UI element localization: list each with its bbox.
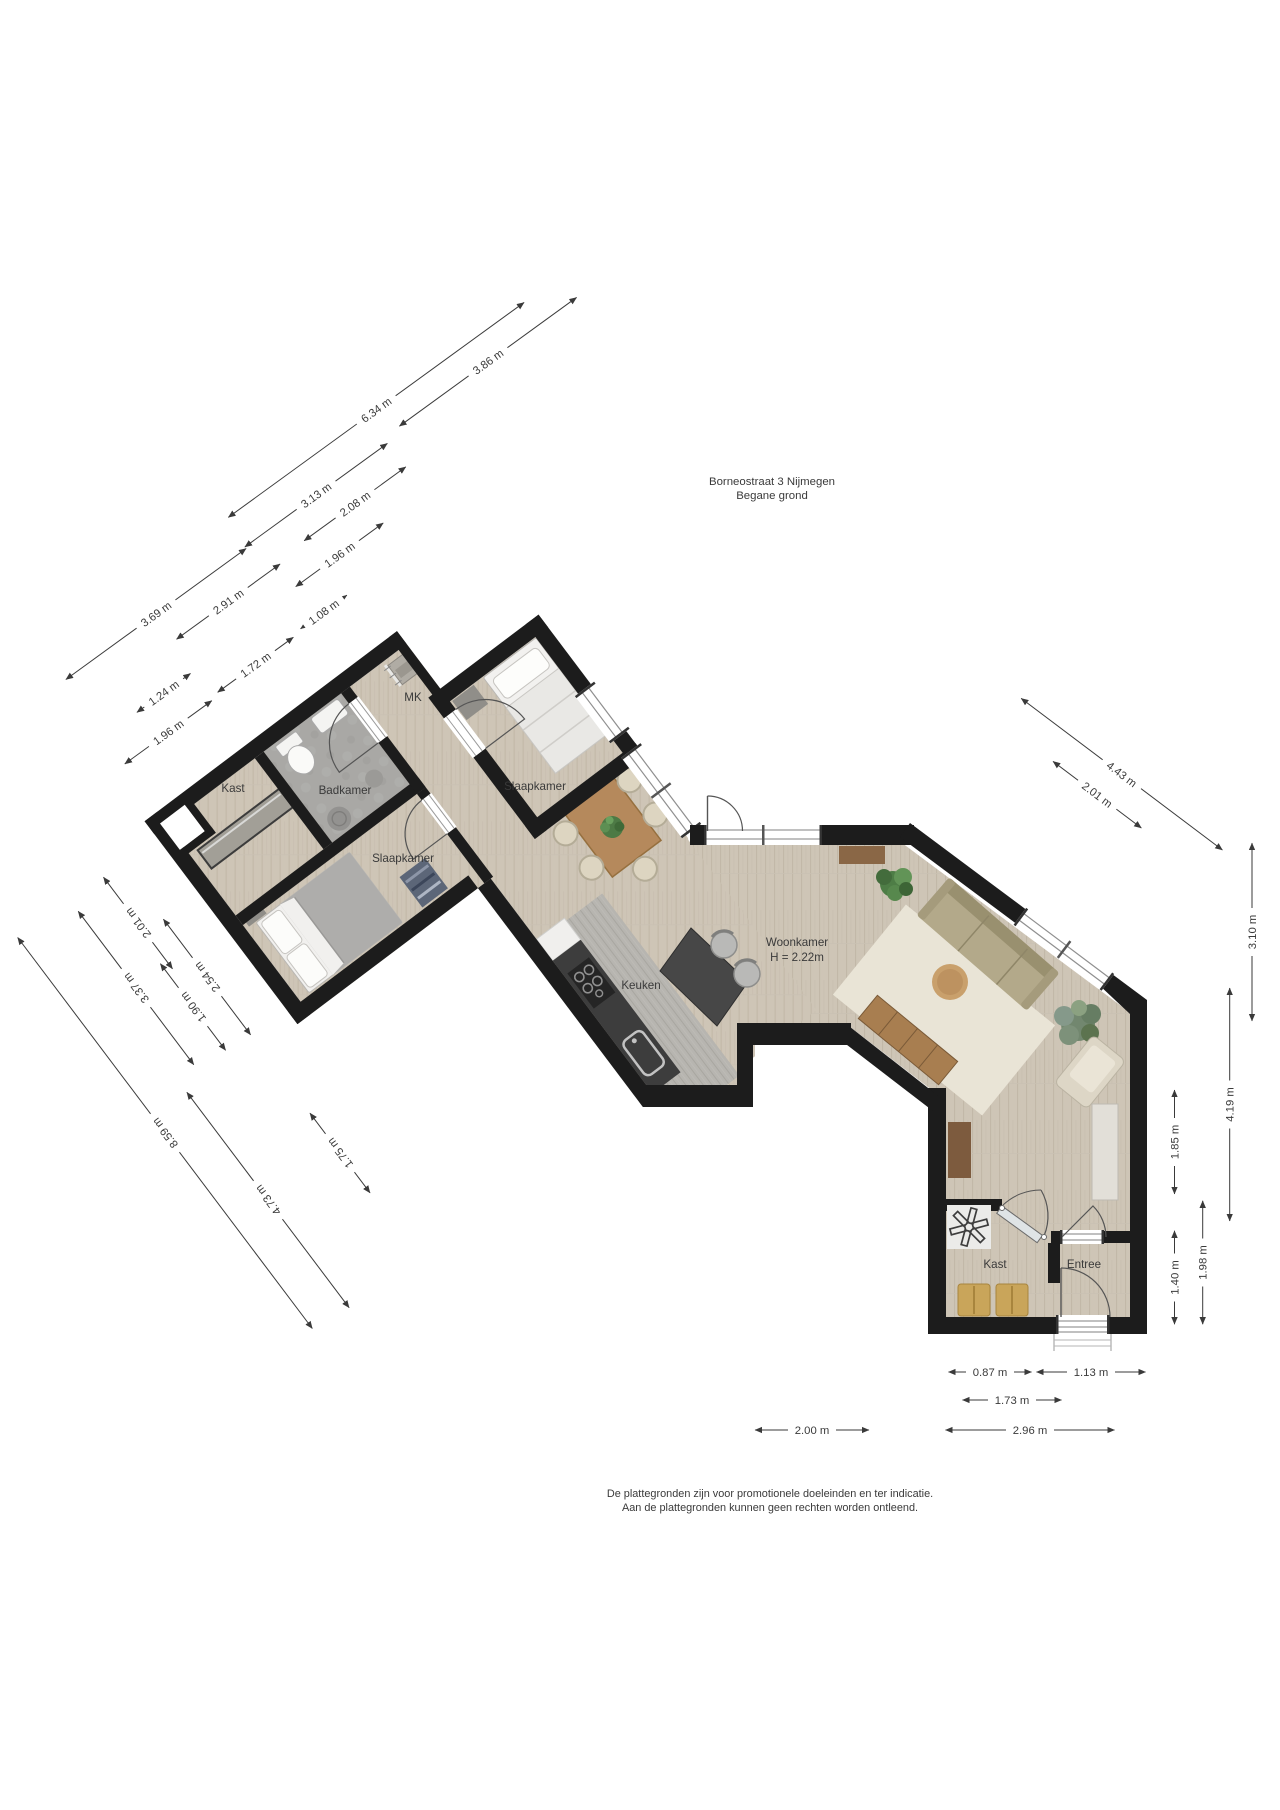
svg-text:2.96 m: 2.96 m [1013, 1425, 1048, 1437]
svg-text:1.98 m: 1.98 m [1198, 1245, 1210, 1280]
svg-text:MK: MK [404, 691, 422, 704]
svg-text:Aan de plattegronden kunnen ge: Aan de plattegronden kunnen geen rechten… [622, 1502, 918, 1514]
svg-text:Kast: Kast [983, 1258, 1007, 1271]
svg-text:Kast: Kast [221, 782, 245, 795]
svg-text:2.00 m: 2.00 m [795, 1425, 830, 1437]
svg-text:Slaapkamer: Slaapkamer [372, 852, 434, 865]
svg-text:0.87 m: 0.87 m [973, 1367, 1008, 1379]
svg-text:1.13 m: 1.13 m [1074, 1367, 1109, 1379]
svg-text:Slaapkamer: Slaapkamer [504, 780, 566, 793]
svg-text:H = 2.22m: H = 2.22m [770, 951, 824, 964]
svg-text:1.85 m: 1.85 m [1170, 1125, 1182, 1160]
svg-text:Begane grond: Begane grond [736, 490, 808, 502]
svg-text:1.40 m: 1.40 m [1170, 1260, 1182, 1295]
svg-text:De plattegronden zijn voor pro: De plattegronden zijn voor promotionele … [607, 1488, 933, 1500]
svg-text:3.10 m: 3.10 m [1247, 915, 1259, 950]
svg-text:1.73 m: 1.73 m [995, 1395, 1030, 1407]
svg-text:4.19 m: 4.19 m [1225, 1087, 1237, 1122]
svg-text:Entree: Entree [1067, 1258, 1101, 1271]
svg-text:Badkamer: Badkamer [319, 784, 372, 797]
svg-text:Keuken: Keuken [621, 979, 660, 992]
svg-text:Borneostraat 3 Nijmegen: Borneostraat 3 Nijmegen [709, 476, 835, 488]
svg-text:Woonkamer: Woonkamer [766, 936, 828, 949]
